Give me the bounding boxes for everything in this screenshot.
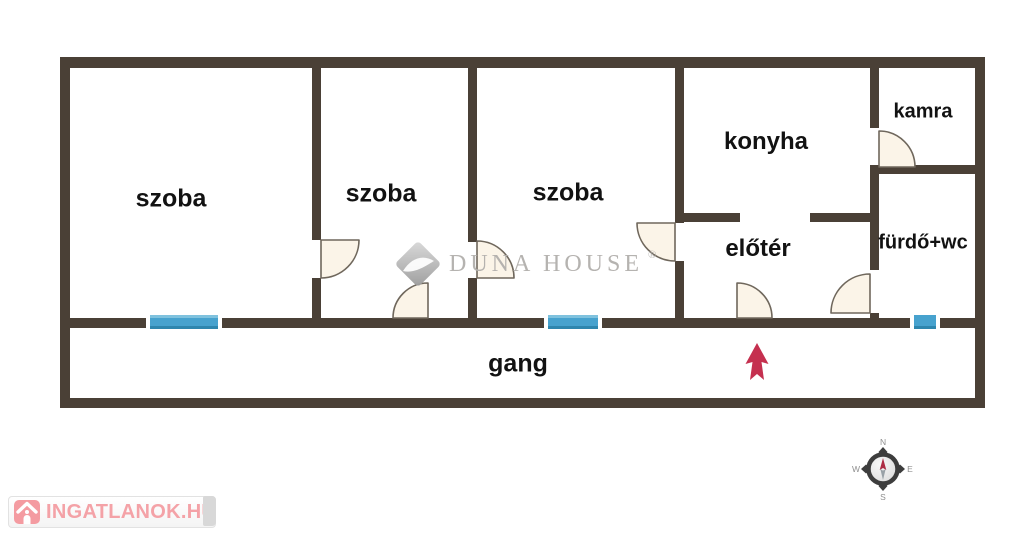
window-jamb [544, 318, 548, 328]
door-elater-to-furdo [831, 274, 870, 313]
window-jamb [146, 318, 150, 328]
wall-szoba3-elater-lower [675, 261, 684, 318]
door-szoba1-to-szoba2 [321, 240, 359, 278]
door-konyha-to-kamra [879, 131, 915, 167]
room-label-elater: előtér [725, 235, 790, 263]
wall-szoba1-szoba2-lower [312, 278, 321, 318]
window-jamb [936, 318, 940, 328]
room-label-szoba-3: szoba [533, 179, 604, 208]
entrance-arrow-icon [746, 343, 769, 380]
window-jamb [910, 318, 914, 328]
wall-left [60, 57, 70, 408]
wall-gang-bottom [60, 398, 985, 408]
house-icon [14, 500, 40, 524]
wall-szoba1-szoba2-upper [312, 68, 321, 240]
floorplan-page: N E S W szoba szoba szoba konyha kamra e… [0, 0, 1024, 536]
room-label-gang: gang [488, 350, 548, 379]
wall-szoba3-konyha-upper [675, 68, 684, 223]
ingatlanok-logo-text: INGATLANOK.HU [46, 501, 216, 524]
dunahouse-watermark: DUNA HOUSE® [394, 238, 658, 290]
wall-konyha-elater-right-stub [810, 213, 879, 222]
wall-top [60, 57, 985, 68]
window-shadow [150, 326, 218, 329]
window-shadow [914, 326, 936, 329]
compass-label-south: S [880, 492, 886, 502]
window-shadow [548, 326, 598, 329]
door-gang-to-elater-entrance [737, 283, 772, 318]
compass-label-west: W [852, 464, 860, 474]
window-jamb [598, 318, 602, 328]
wall-elater-furdo-stub [870, 313, 879, 318]
room-label-szoba-2: szoba [346, 180, 417, 209]
window-highlight [150, 315, 218, 318]
wall-right [975, 57, 985, 408]
registered-trademark-symbol: ® [648, 249, 656, 261]
room-label-kamra: kamra [894, 101, 953, 124]
wall-konyha-elater-left-stub [675, 213, 740, 222]
wall-szoba2-szoba3-upper [468, 68, 477, 242]
window-jamb [218, 318, 222, 328]
logo-right-cap [203, 496, 216, 526]
wall-konyha-kamra-upper [870, 68, 879, 128]
ingatlanok-logo: INGATLANOK.HU [8, 496, 216, 528]
room-label-konyha: konyha [724, 128, 808, 156]
dunahouse-diamond-icon [394, 239, 442, 289]
window-highlight [548, 315, 598, 318]
dunahouse-wordmark: DUNA HOUSE [449, 251, 643, 278]
compass-label-east: E [907, 464, 913, 474]
room-label-szoba-1: szoba [136, 185, 207, 214]
compass-rose: N E S W [852, 437, 913, 502]
room-label-furdo-wc: fürdő+wc [878, 232, 967, 255]
compass-label-north: N [880, 437, 886, 447]
